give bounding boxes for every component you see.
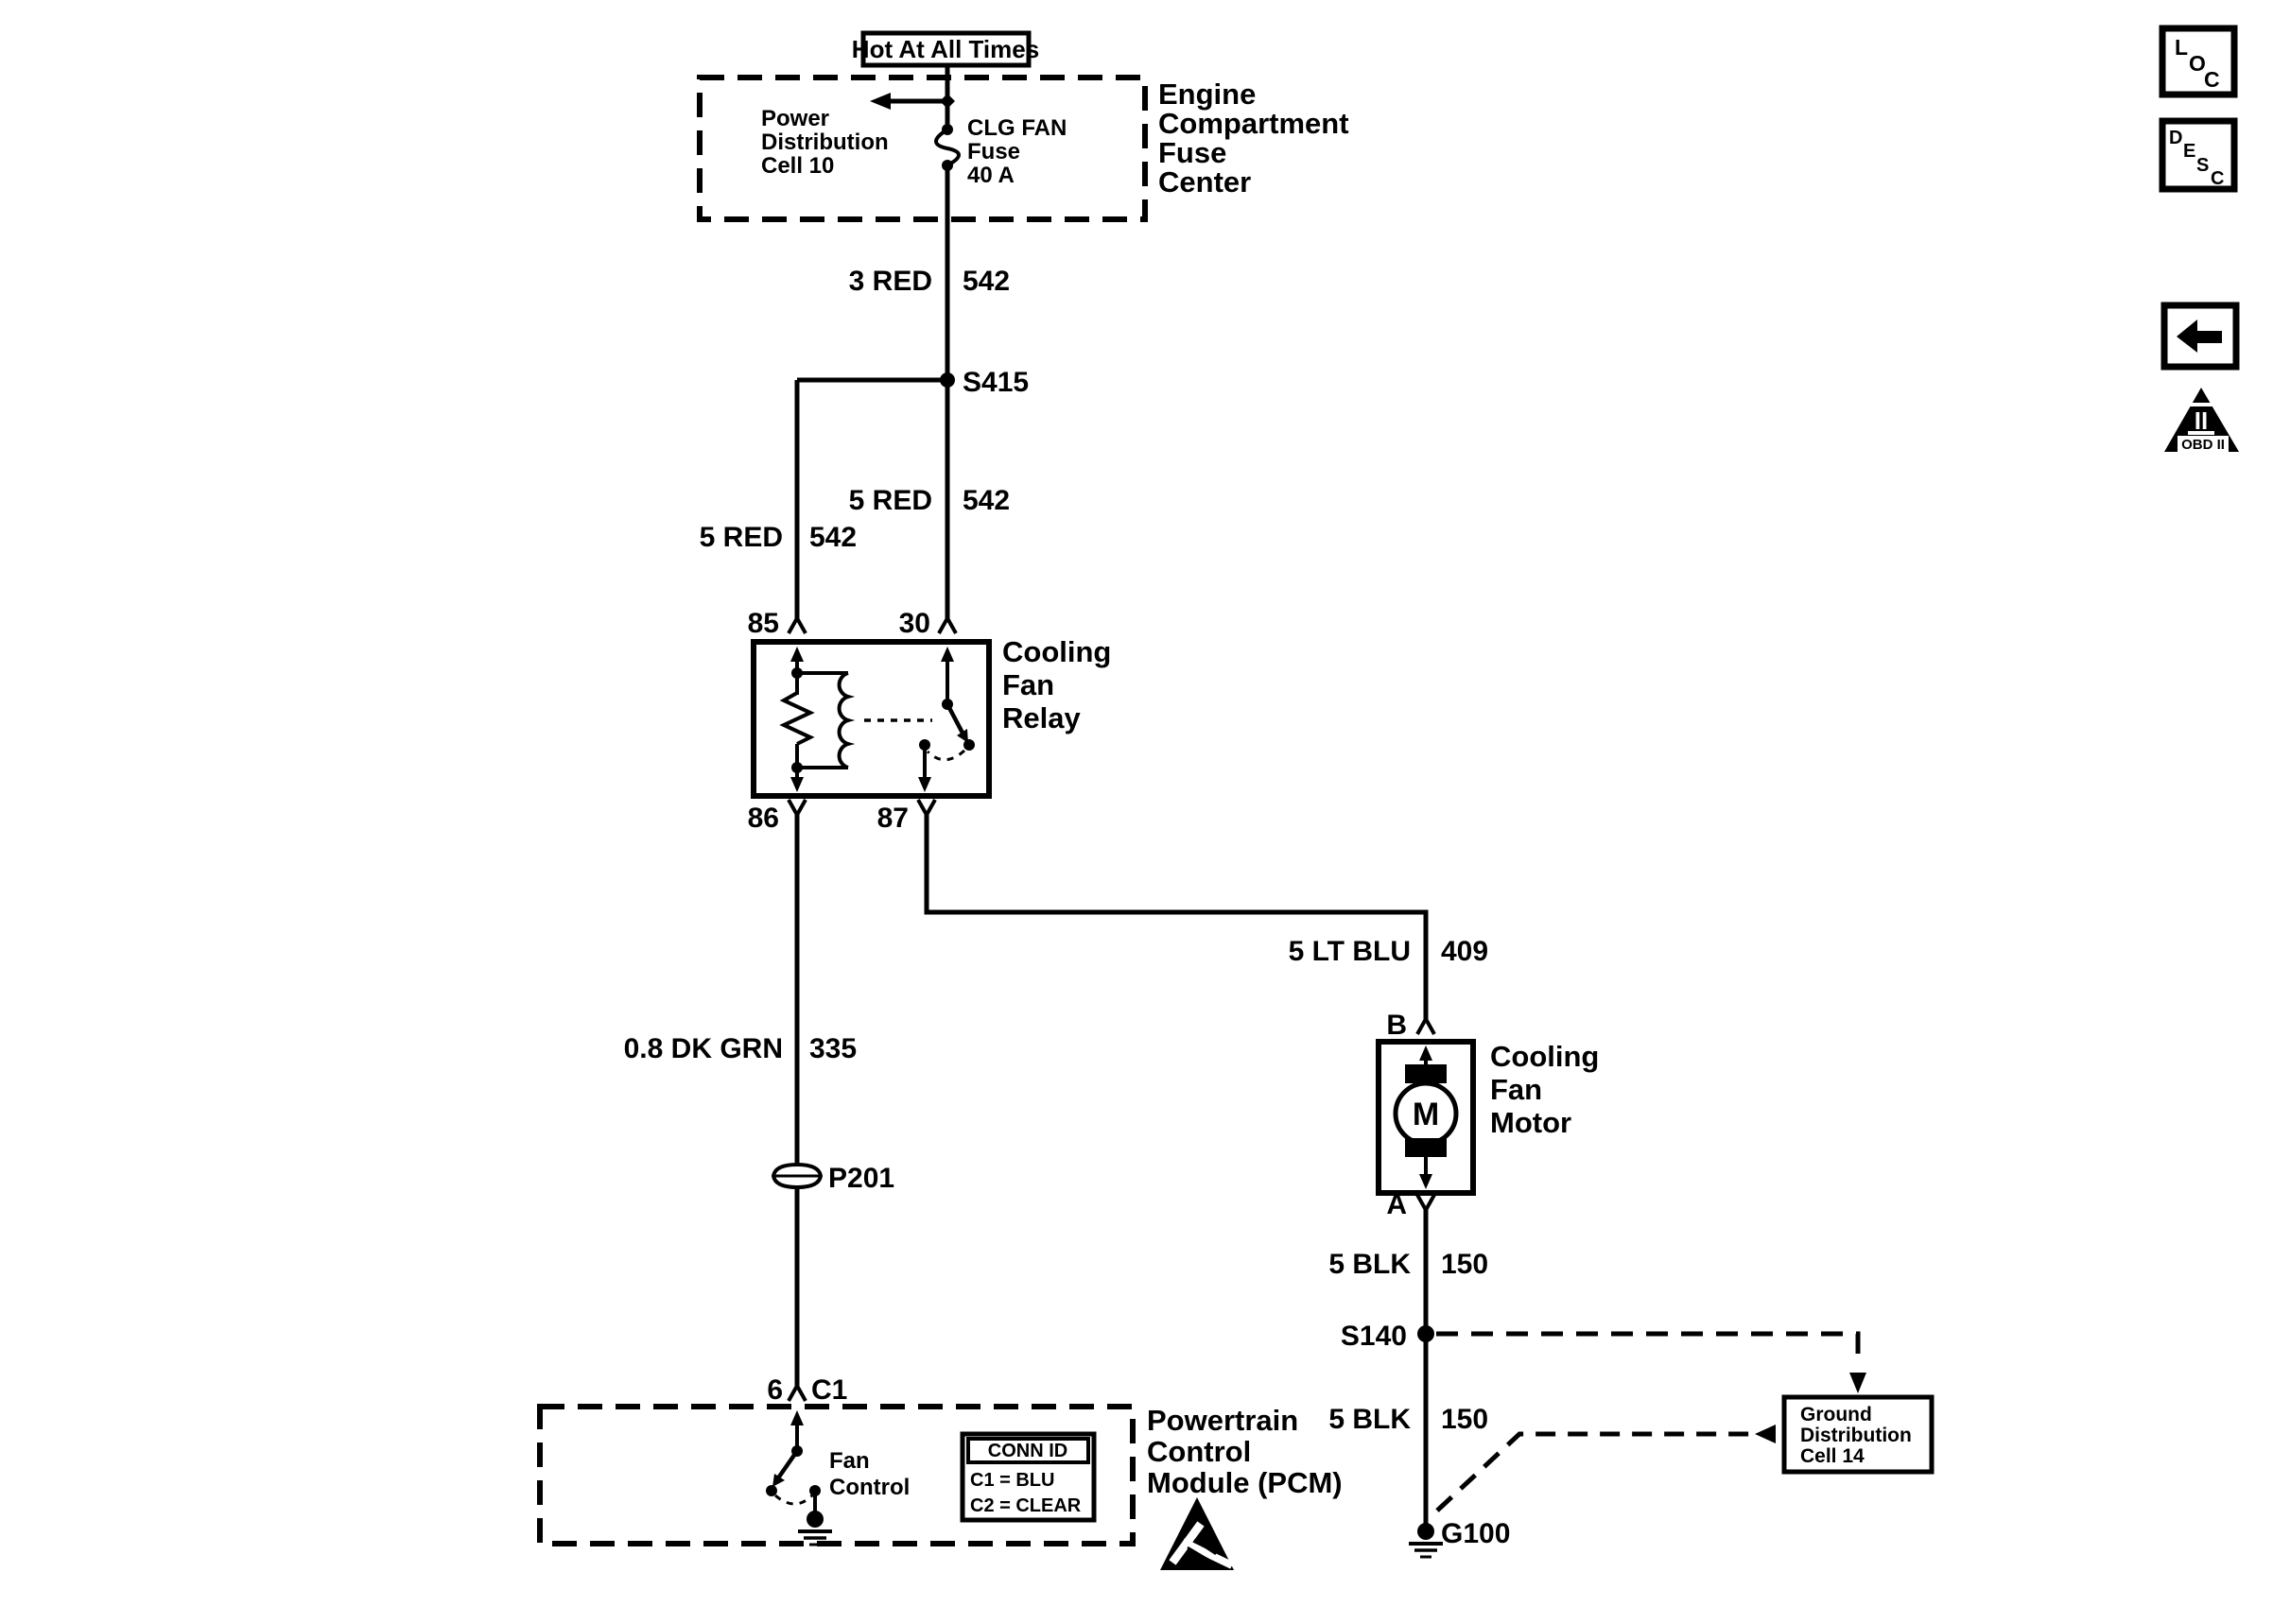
back-button[interactable] bbox=[2164, 305, 2236, 367]
wire-blk-upper-name: 5 BLK bbox=[1328, 1249, 1411, 1280]
fuse-center-section: Hot At All Times Engine Compartment Fuse… bbox=[700, 33, 1349, 219]
pcm-title-line1: Powertrain bbox=[1147, 1404, 1298, 1437]
motor-brush-top bbox=[1405, 1064, 1447, 1083]
g100-reference-arrow-icon bbox=[1755, 1425, 1776, 1443]
ground-dist-line2: Distribution bbox=[1800, 1425, 1912, 1446]
wire-ltblu-circuit: 409 bbox=[1441, 936, 1488, 967]
relay-resistor-icon bbox=[784, 693, 810, 744]
pin87-chevron-icon bbox=[918, 800, 935, 815]
fan-control-wire-section: 0.8 DK GRN 335 P201 6 C1 bbox=[624, 815, 894, 1406]
fuse-center-title-line2: Compartment bbox=[1158, 107, 1349, 140]
desc-letter-3: S bbox=[2196, 155, 2209, 176]
relay-pin87-label: 87 bbox=[877, 803, 909, 834]
esd-warning-icon bbox=[1160, 1497, 1234, 1570]
desc-letter-2: E bbox=[2183, 141, 2195, 162]
relay-coil-winding-icon bbox=[797, 673, 848, 768]
obd2-indicator-icon: II OBD II bbox=[2164, 388, 2239, 453]
relay-coil-arrow-down-icon bbox=[790, 777, 804, 792]
p201-label: P201 bbox=[828, 1163, 894, 1194]
wire-5red-right-name: 5 RED bbox=[849, 485, 932, 516]
ground-section: 5 BLK 150 S140 Ground Distribution Cell … bbox=[1328, 1210, 1932, 1557]
fuse-center-title-line1: Engine bbox=[1158, 78, 1256, 111]
pcm-pin-connector: C1 bbox=[811, 1374, 847, 1406]
motor-pinB-chevron-icon bbox=[1417, 1019, 1434, 1034]
splice-s415-label: S415 bbox=[963, 367, 1029, 398]
relay-pin30-label: 30 bbox=[899, 608, 930, 639]
cooling-fan-schematic: Hot At All Times Engine Compartment Fuse… bbox=[0, 0, 2273, 1624]
motor-pinB-label: B bbox=[1386, 1010, 1407, 1041]
relay-title-line1: Cooling bbox=[1002, 635, 1111, 668]
power-dist-line2: Distribution bbox=[761, 130, 889, 155]
conn-id-row1: C1 = BLU bbox=[970, 1470, 1054, 1491]
loc-letter-3: C bbox=[2204, 67, 2220, 92]
fuse-label-line3: 40 A bbox=[967, 163, 1015, 188]
fan-motor-section: 5 LT BLU 409 B M Cooling Fan Motor A bbox=[927, 815, 1599, 1220]
s140-reference-dash bbox=[1436, 1334, 1858, 1367]
splice-s140-dot bbox=[1417, 1325, 1434, 1342]
conn-id-row2: C2 = CLEAR bbox=[970, 1495, 1082, 1516]
fan-control-line2: Control bbox=[829, 1475, 910, 1500]
relay-switch-open-contact bbox=[963, 739, 975, 751]
loc-letter-1: L bbox=[2175, 35, 2188, 60]
wire-blk-lower-circuit: 150 bbox=[1441, 1404, 1488, 1435]
motor-title-line1: Cooling bbox=[1490, 1040, 1599, 1073]
feed-wire-section: 3 RED 542 S415 5 RED 542 5 RED 542 bbox=[700, 165, 1029, 618]
obd2-label: OBD II bbox=[2181, 437, 2225, 453]
ground-dist-line3: Cell 14 bbox=[1800, 1445, 1865, 1467]
wire-5red-right-circuit: 542 bbox=[963, 485, 1010, 516]
motor-pinA-label: A bbox=[1386, 1189, 1407, 1220]
wire-ltblu-409 bbox=[927, 815, 1426, 1019]
wire-3red-name: 3 RED bbox=[849, 266, 932, 297]
relay-switch-throw-arc bbox=[928, 751, 964, 760]
wire-ltblu-name: 5 LT BLU bbox=[1289, 936, 1411, 967]
relay-title-line2: Fan bbox=[1002, 668, 1054, 701]
pin30-chevron-icon bbox=[939, 618, 956, 633]
desc-letter-4: C bbox=[2211, 168, 2224, 189]
wire-blk-lower-name: 5 BLK bbox=[1328, 1404, 1411, 1435]
power-dist-arrow-icon bbox=[870, 93, 891, 110]
pcm-pin-number: 6 bbox=[767, 1374, 783, 1406]
fuse-center-title-line3: Fuse bbox=[1158, 136, 1226, 169]
junction-diamond bbox=[940, 94, 955, 109]
g100-label: G100 bbox=[1441, 1518, 1510, 1549]
pcm-title-line2: Control bbox=[1147, 1435, 1251, 1468]
wire-5red-left-name: 5 RED bbox=[700, 522, 783, 553]
pcm-title-line3: Module (PCM) bbox=[1147, 1466, 1343, 1499]
conn-id-header: CONN ID bbox=[988, 1441, 1067, 1461]
conn-id-table: CONN ID C1 = BLU C2 = CLEAR bbox=[963, 1434, 1094, 1520]
fan-control-line1: Fan bbox=[829, 1448, 870, 1474]
wire-5red-left-circuit: 542 bbox=[809, 522, 857, 553]
relay-section: 85 30 Cooling Fan Relay 86 87 bbox=[748, 608, 1112, 834]
fuse-center-title-line4: Center bbox=[1158, 165, 1251, 199]
splice-s140-label: S140 bbox=[1341, 1321, 1407, 1352]
desc-letter-1: D bbox=[2169, 128, 2182, 148]
fuse-label-line1: CLG FAN bbox=[967, 115, 1067, 141]
pcm-switch-open-contact bbox=[766, 1485, 777, 1496]
pin85-chevron-icon bbox=[789, 618, 806, 633]
s140-reference-arrow-icon bbox=[1849, 1373, 1866, 1393]
pin86-chevron-icon bbox=[789, 800, 806, 815]
relay-pin86-label: 86 bbox=[748, 803, 779, 834]
motor-title-line3: Motor bbox=[1490, 1106, 1571, 1139]
g100-reference-dash bbox=[1437, 1434, 1749, 1511]
pcm-ground-dot bbox=[807, 1511, 824, 1528]
wiring-diagram-page: Hot At All Times Engine Compartment Fuse… bbox=[0, 0, 2273, 1624]
loc-button[interactable]: L O C bbox=[2162, 28, 2234, 95]
g100-dot bbox=[1417, 1523, 1434, 1540]
relay-pin85-label: 85 bbox=[748, 608, 779, 639]
desc-button[interactable]: D E S C bbox=[2162, 121, 2234, 189]
power-dist-line3: Cell 10 bbox=[761, 153, 834, 179]
pcm-switch-throw-arc bbox=[775, 1495, 812, 1504]
ground-dist-line1: Ground bbox=[1800, 1404, 1872, 1425]
motor-pinA-chevron-icon bbox=[1417, 1195, 1434, 1210]
wire-dkgrn-circuit: 335 bbox=[809, 1033, 857, 1064]
pcm-pin-chevron-icon bbox=[789, 1386, 806, 1401]
relay-87-arrow-down-icon bbox=[918, 777, 931, 792]
g100-ground-symbol-icon bbox=[1409, 1544, 1443, 1557]
wire-dkgrn-name: 0.8 DK GRN bbox=[624, 1033, 783, 1064]
motor-arrow-down-icon bbox=[1419, 1174, 1432, 1189]
pcm-section: Powertrain Control Module (PCM) Fan Cont… bbox=[540, 1404, 1343, 1570]
motor-title-line2: Fan bbox=[1490, 1073, 1542, 1106]
obd2-numeral: II bbox=[2195, 406, 2208, 435]
hot-at-all-times-label: Hot At All Times bbox=[852, 35, 1039, 63]
wire-blk-upper-circuit: 150 bbox=[1441, 1249, 1488, 1280]
motor-brush-bottom bbox=[1405, 1138, 1447, 1157]
power-dist-line1: Power bbox=[761, 106, 829, 131]
relay-title-line3: Relay bbox=[1002, 701, 1081, 734]
motor-symbol: M bbox=[1413, 1097, 1439, 1132]
fuse-label-line2: Fuse bbox=[967, 139, 1020, 164]
wire-3red-circuit: 542 bbox=[963, 266, 1010, 297]
